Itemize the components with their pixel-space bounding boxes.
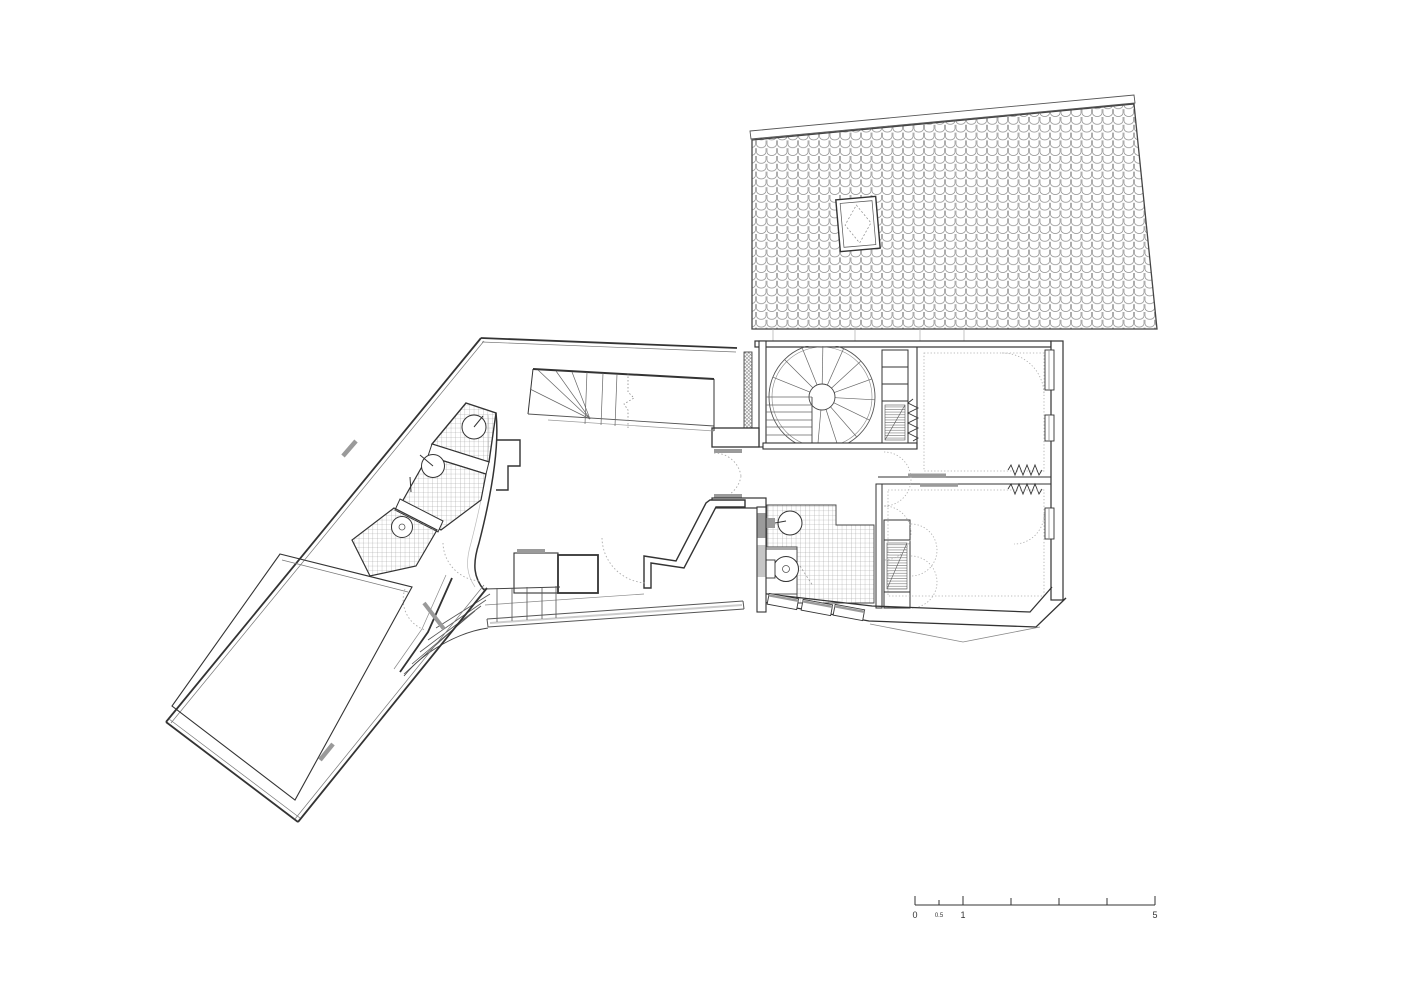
door-leaf bbox=[517, 549, 545, 553]
window-icon bbox=[343, 441, 356, 456]
scale-label-0: 0 bbox=[912, 910, 917, 920]
sliding-door-leaf bbox=[908, 474, 946, 478]
radiator-icon bbox=[1008, 465, 1042, 475]
right-wing bbox=[755, 341, 1066, 642]
scale-label-05: 0.5 bbox=[935, 913, 944, 919]
scale-label-1: 1 bbox=[960, 910, 965, 920]
window-icon bbox=[758, 545, 766, 577]
stair-newel bbox=[809, 384, 835, 410]
central-block bbox=[443, 338, 745, 627]
stair-room-south-wall bbox=[763, 443, 917, 449]
door-swing bbox=[911, 524, 937, 576]
window-icon bbox=[1045, 350, 1054, 390]
roof-tiled-surface bbox=[752, 104, 1157, 329]
wardrobe bbox=[884, 520, 937, 608]
radiator-icon bbox=[1008, 484, 1042, 494]
scale-bar: 0 0.5 1 5 bbox=[912, 896, 1157, 920]
left-bathroom bbox=[352, 403, 496, 576]
toilet-icon bbox=[462, 415, 486, 439]
long-room bbox=[172, 554, 412, 800]
wall-notch bbox=[496, 440, 520, 490]
right-bathroom bbox=[765, 505, 874, 603]
toilet-icon bbox=[392, 517, 413, 538]
terrace-strip bbox=[485, 594, 744, 627]
floor-plan-drawing: 0 0.5 1 5 bbox=[0, 0, 1415, 1000]
angled-south-wall bbox=[644, 500, 745, 588]
corridor bbox=[712, 352, 766, 612]
door-swing bbox=[714, 453, 741, 476]
door-swing bbox=[911, 556, 937, 608]
shelf-unit bbox=[882, 350, 908, 443]
door-swing bbox=[403, 589, 425, 630]
roof bbox=[750, 95, 1157, 343]
door-swing bbox=[602, 538, 647, 583]
door-leaf bbox=[714, 494, 742, 498]
main-stair bbox=[528, 369, 714, 431]
toilet-icon bbox=[766, 557, 799, 582]
door-head-wall bbox=[712, 428, 759, 447]
north-wall bbox=[755, 341, 1051, 347]
hatched-wall bbox=[744, 352, 752, 440]
northeast-room bbox=[924, 353, 1044, 471]
door-swing bbox=[1002, 353, 1044, 395]
door-swing bbox=[1014, 514, 1044, 544]
floor-plan-sheet: 0 0.5 1 5 bbox=[0, 0, 1415, 1000]
stair-break-line bbox=[624, 373, 634, 428]
door-leaf bbox=[714, 449, 742, 453]
window-icon bbox=[1045, 415, 1054, 441]
sliding-door-leaf bbox=[920, 483, 958, 487]
roof-skylight bbox=[836, 196, 880, 251]
middle-partition bbox=[878, 474, 1051, 487]
stair-room-west-wall bbox=[759, 341, 766, 447]
scale-label-5: 5 bbox=[1152, 910, 1157, 920]
window-icon bbox=[758, 513, 766, 538]
southeast-room bbox=[888, 490, 1044, 596]
straight-flight bbox=[766, 397, 812, 443]
left-wing bbox=[166, 338, 496, 822]
door-leaf bbox=[424, 603, 444, 629]
window-icon bbox=[1045, 508, 1054, 539]
bath-partition-wall bbox=[876, 484, 882, 608]
winder-treads bbox=[530, 370, 617, 426]
